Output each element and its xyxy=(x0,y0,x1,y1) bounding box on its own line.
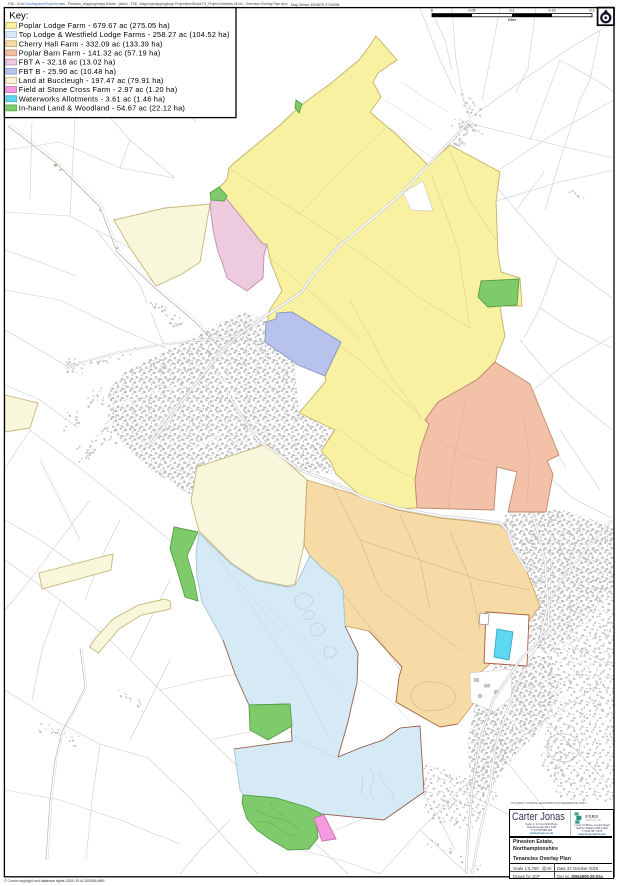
svg-text:Waterworks Allotments - 3.61 a: Waterworks Allotments - 3.61 ac (1.46 ha… xyxy=(19,94,165,103)
svg-text:Poplar Barn Farm - 141.32 ac (: Poplar Barn Farm - 141.32 ac (57.19 ha) xyxy=(19,49,161,58)
svg-text:FBT B - 25.90 ac (10.48 ha): FBT B - 25.90 ac (10.48 ha) xyxy=(19,67,116,76)
svg-text:In-hand Land & Woodland - 54.6: In-hand Land & Woodland - 54.67 ac (22.1… xyxy=(19,104,185,113)
svg-text:FBT A - 32.18 ac (13.02 ha): FBT A - 32.18 ac (13.02 ha) xyxy=(19,58,116,67)
svg-text:Field at Stone Cross Farm - 2.: Field at Stone Cross Farm - 2.97 ac (1.2… xyxy=(19,85,178,94)
svg-text:Cherry Hall Farm - 332.09 ac (: Cherry Hall Farm - 332.09 ac (133.39 ha) xyxy=(19,39,163,48)
svg-text:Land at Buccleugh - 197.47 ac: Land at Buccleugh - 197.47 ac (79.91 ha) xyxy=(19,76,164,85)
